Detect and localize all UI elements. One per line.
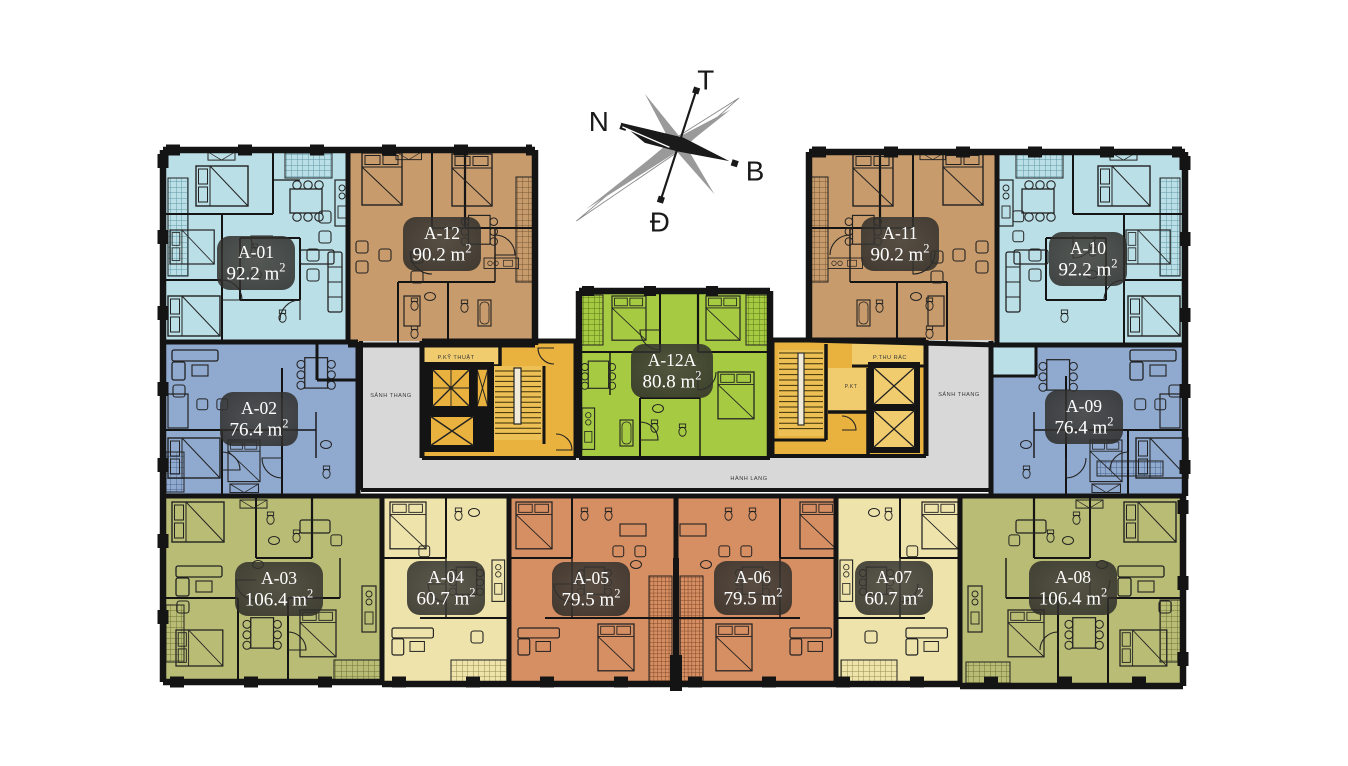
svg-text:79.5 m2: 79.5 m2 bbox=[561, 587, 620, 611]
svg-text:A-01: A-01 bbox=[238, 242, 274, 262]
svg-text:76.4 m2: 76.4 m2 bbox=[1054, 415, 1113, 439]
svg-text:60.7 m2: 60.7 m2 bbox=[416, 586, 475, 610]
svg-text:A-05: A-05 bbox=[573, 568, 609, 588]
svg-text:A-04: A-04 bbox=[428, 567, 464, 587]
svg-text:79.5 m2: 79.5 m2 bbox=[723, 586, 782, 610]
svg-text:92.2 m2: 92.2 m2 bbox=[1058, 257, 1117, 281]
svg-text:SẢNH THANG: SẢNH THANG bbox=[938, 391, 980, 398]
svg-text:SẢNH THANG: SẢNH THANG bbox=[370, 392, 412, 399]
svg-text:P.KỸ THUẬT: P.KỸ THUẬT bbox=[437, 354, 474, 361]
svg-text:A-08: A-08 bbox=[1055, 567, 1091, 587]
svg-text:A-07: A-07 bbox=[876, 567, 912, 587]
svg-text:90.2 m2: 90.2 m2 bbox=[412, 242, 471, 266]
svg-text:N: N bbox=[589, 106, 609, 137]
svg-text:A-09: A-09 bbox=[1066, 396, 1102, 416]
svg-text:P.THU RÁC: P.THU RÁC bbox=[873, 354, 907, 361]
svg-text:106.4 m2: 106.4 m2 bbox=[1039, 586, 1108, 610]
svg-text:A-02: A-02 bbox=[241, 398, 277, 418]
svg-text:A-10: A-10 bbox=[1070, 238, 1106, 258]
svg-text:60.7 m2: 60.7 m2 bbox=[864, 586, 923, 610]
svg-text:A-03: A-03 bbox=[261, 568, 297, 588]
svg-text:A-06: A-06 bbox=[735, 567, 771, 587]
svg-text:90.2 m2: 90.2 m2 bbox=[870, 242, 929, 266]
svg-text:A-11: A-11 bbox=[882, 223, 917, 243]
svg-text:92.2 m2: 92.2 m2 bbox=[226, 261, 285, 285]
svg-text:HÀNH LANG: HÀNH LANG bbox=[730, 475, 767, 482]
svg-text:106.4 m2: 106.4 m2 bbox=[245, 587, 314, 611]
svg-text:A-12A: A-12A bbox=[648, 350, 697, 370]
svg-text:A-12: A-12 bbox=[424, 223, 460, 243]
svg-text:Đ: Đ bbox=[650, 207, 670, 238]
svg-text:T: T bbox=[697, 64, 714, 95]
svg-text:76.4 m2: 76.4 m2 bbox=[229, 417, 288, 441]
svg-text:80.8 m2: 80.8 m2 bbox=[642, 369, 701, 393]
svg-text:B: B bbox=[746, 155, 765, 186]
svg-text:P.KT: P.KT bbox=[845, 384, 858, 390]
